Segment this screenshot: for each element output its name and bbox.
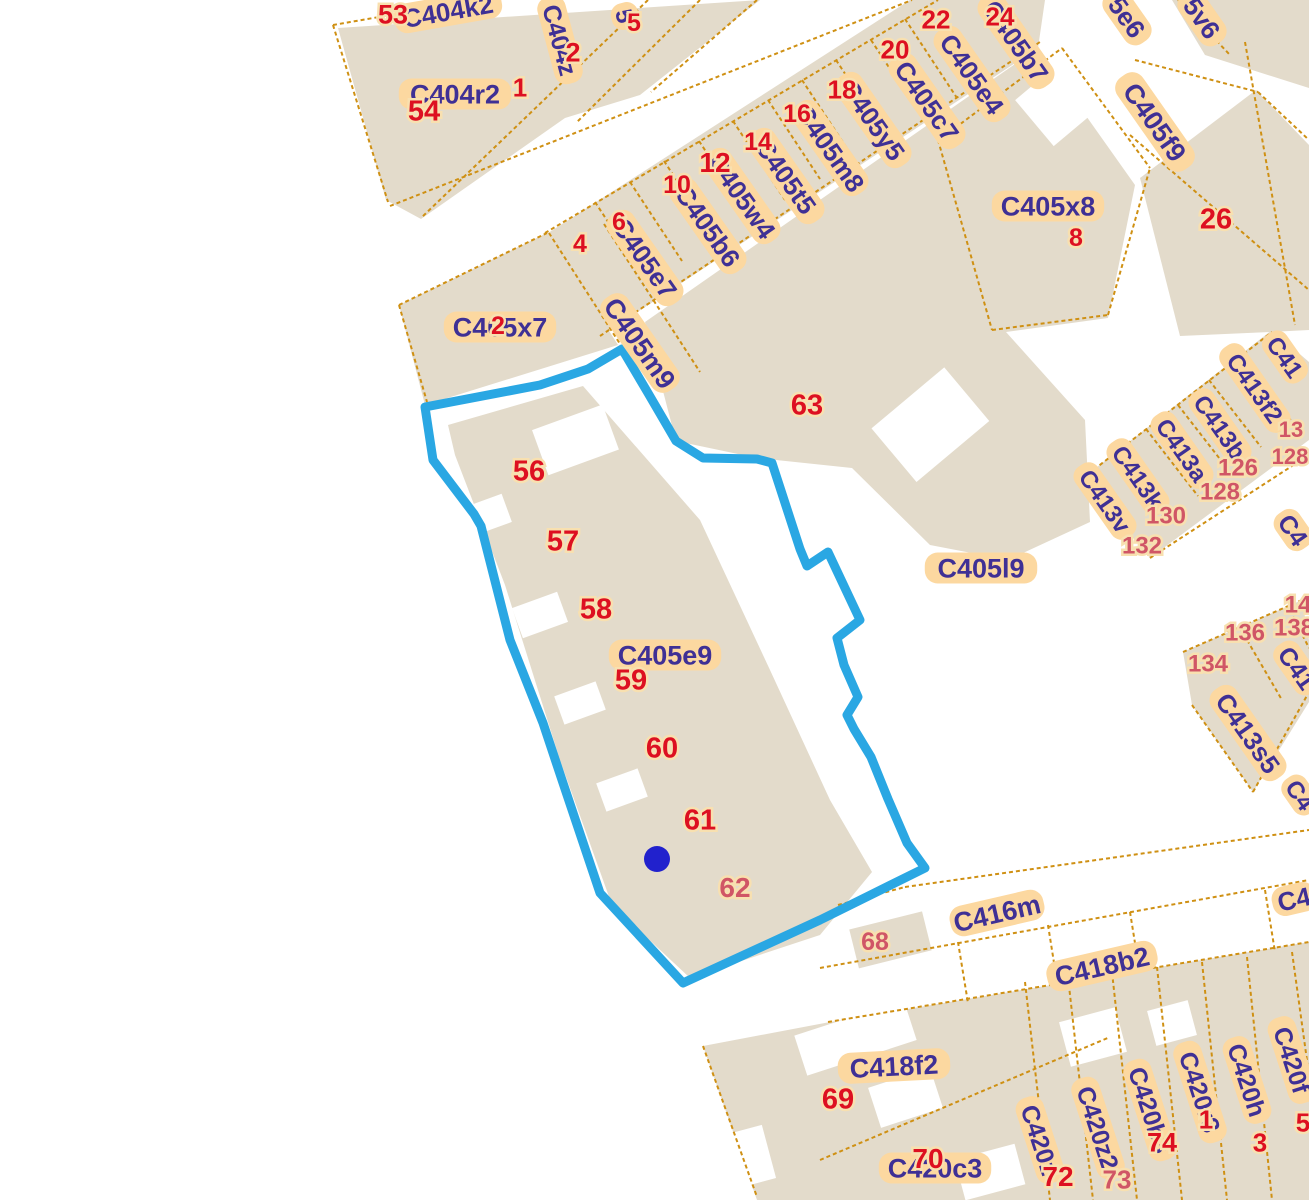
- parcel-number-14: 14: [1285, 592, 1309, 619]
- parcel-label-C405x8: C405x8: [992, 190, 1104, 221]
- parcel-number-10: 10: [663, 171, 691, 199]
- parcel-number-6: 6: [612, 208, 626, 236]
- parcel-number-2: 2: [491, 312, 505, 340]
- parcel-number-56: 56: [513, 455, 545, 487]
- parcel-number-73: 73: [1103, 1164, 1132, 1194]
- parcel-label-C418f2: C418f2: [837, 1048, 951, 1085]
- parcel-label-C405l9: C405l9: [925, 552, 1037, 583]
- parcel-number-24: 24: [986, 1, 1015, 31]
- parcel-number-70: 70: [912, 1143, 943, 1174]
- parcel-number-128: 128: [1200, 479, 1240, 506]
- parcel-number-58: 58: [580, 593, 612, 625]
- parcel-number-63: 63: [791, 389, 823, 421]
- parcel-number-16: 16: [783, 100, 811, 128]
- parcel-number-3: 3: [1253, 1127, 1267, 1157]
- parcel-number-5: 5: [1296, 1107, 1309, 1137]
- parcel-number-12: 12: [699, 147, 730, 178]
- parcel-number-136: 136: [1225, 620, 1265, 647]
- svg-text:C4: C4: [1275, 881, 1309, 918]
- parcel-number-72: 72: [1042, 1161, 1073, 1192]
- parcel-number-138: 138: [1274, 615, 1309, 642]
- map-viewport[interactable]: C404k2C404r2C404z5C405e7C405b6C405w4C405…: [0, 0, 1309, 1200]
- parcel-number-62: 62: [719, 872, 750, 903]
- parcel-number-13: 13: [1279, 417, 1303, 442]
- parcel-number-61: 61: [684, 804, 716, 836]
- svg-text:C405f9: C405f9: [1117, 78, 1192, 168]
- parcel-number-8: 8: [1069, 224, 1083, 252]
- svg-text:C418f2: C418f2: [849, 1049, 939, 1084]
- parcel-number-59: 59: [615, 664, 647, 696]
- parcel-number-132: 132: [1122, 533, 1162, 560]
- parcel-number-2: 2: [565, 38, 580, 68]
- parcel-number-20: 20: [881, 34, 910, 64]
- location-marker-dot: [644, 846, 670, 872]
- parcel-number-54: 54: [408, 95, 440, 127]
- parcel-label-5e6: 5e6: [1097, 0, 1156, 51]
- parcel-number-128: 128: [1272, 444, 1309, 469]
- parcel-number-22: 22: [922, 4, 951, 34]
- parcel-number-126: 126: [1218, 455, 1258, 482]
- parcel-number-57: 57: [547, 525, 579, 557]
- parcel-number-14: 14: [744, 128, 772, 156]
- parcel-label-C4: C4: [1276, 770, 1309, 821]
- parcel-number-26: 26: [1200, 203, 1232, 235]
- parcel-number-1: 1: [513, 72, 527, 102]
- parcel-label-C4: C4: [1268, 504, 1309, 556]
- parcel-number-130: 130: [1146, 503, 1186, 530]
- parcel-number-5: 5: [627, 9, 641, 37]
- svg-text:C405l9: C405l9: [937, 554, 1024, 584]
- svg-text:C4: C4: [1279, 775, 1309, 816]
- parcel-label-C416m: C416m: [947, 887, 1047, 939]
- parcel-label-C405f9: C405f9: [1110, 67, 1200, 177]
- map-canvas[interactable]: C404k2C404r2C404z5C405e7C405b6C405w4C405…: [0, 0, 1309, 1200]
- parcel-number-69: 69: [822, 1083, 854, 1115]
- building-footprints: [338, 0, 1309, 1200]
- parcel-number-68: 68: [861, 928, 889, 956]
- parcel-number-74: 74: [1147, 1128, 1177, 1158]
- parcel-number-1: 1: [1199, 1104, 1213, 1134]
- svg-text:C405x8: C405x8: [1001, 192, 1096, 222]
- parcel-number-18: 18: [828, 74, 857, 104]
- parcel-number-4: 4: [573, 230, 587, 258]
- parcel-number-53: 53: [378, 0, 408, 30]
- parcel-number-60: 60: [646, 732, 678, 764]
- parcel-number-134: 134: [1188, 651, 1229, 678]
